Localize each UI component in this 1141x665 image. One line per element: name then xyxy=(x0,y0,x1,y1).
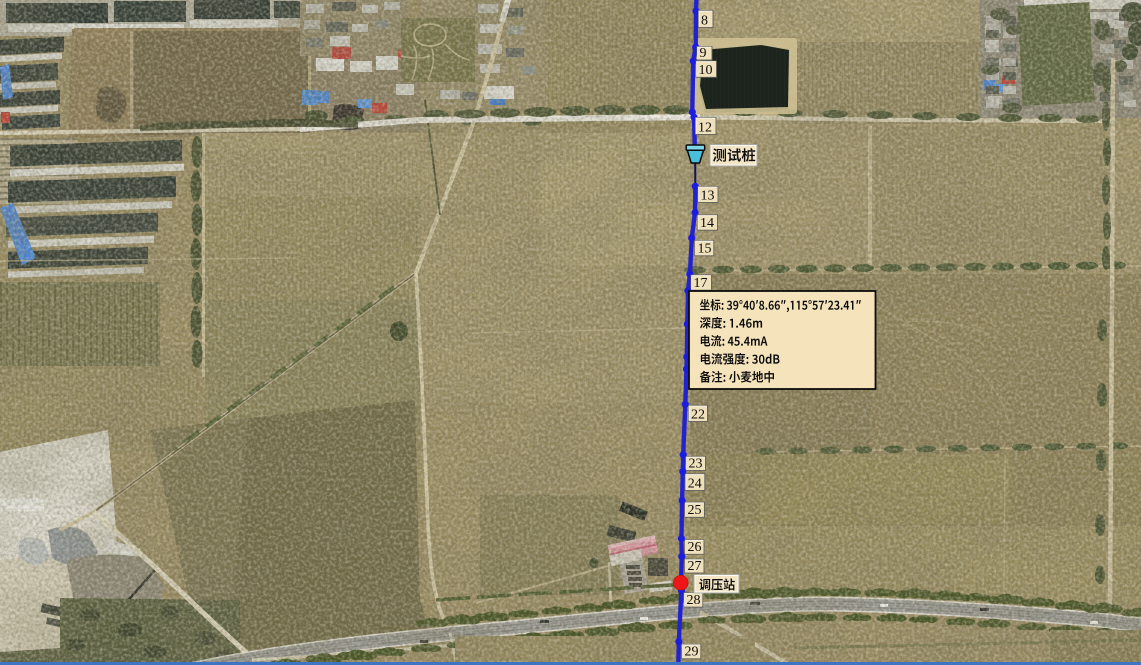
svg-text:26: 26 xyxy=(688,540,702,555)
svg-text:28: 28 xyxy=(687,593,701,608)
svg-text:13: 13 xyxy=(701,188,715,203)
svg-text:9: 9 xyxy=(700,46,707,61)
svg-text:22: 22 xyxy=(691,407,705,422)
svg-text:8: 8 xyxy=(701,13,708,28)
svg-text:10: 10 xyxy=(699,63,713,78)
svg-text:15: 15 xyxy=(698,242,712,257)
svg-text:23: 23 xyxy=(689,456,703,471)
svg-text:14: 14 xyxy=(700,216,714,231)
svg-text:17: 17 xyxy=(694,276,708,291)
svg-text:25: 25 xyxy=(688,503,702,518)
svg-text:27: 27 xyxy=(688,559,702,574)
svg-text:12: 12 xyxy=(698,120,712,135)
svg-text:24: 24 xyxy=(688,476,702,491)
svg-text:29: 29 xyxy=(685,645,699,660)
